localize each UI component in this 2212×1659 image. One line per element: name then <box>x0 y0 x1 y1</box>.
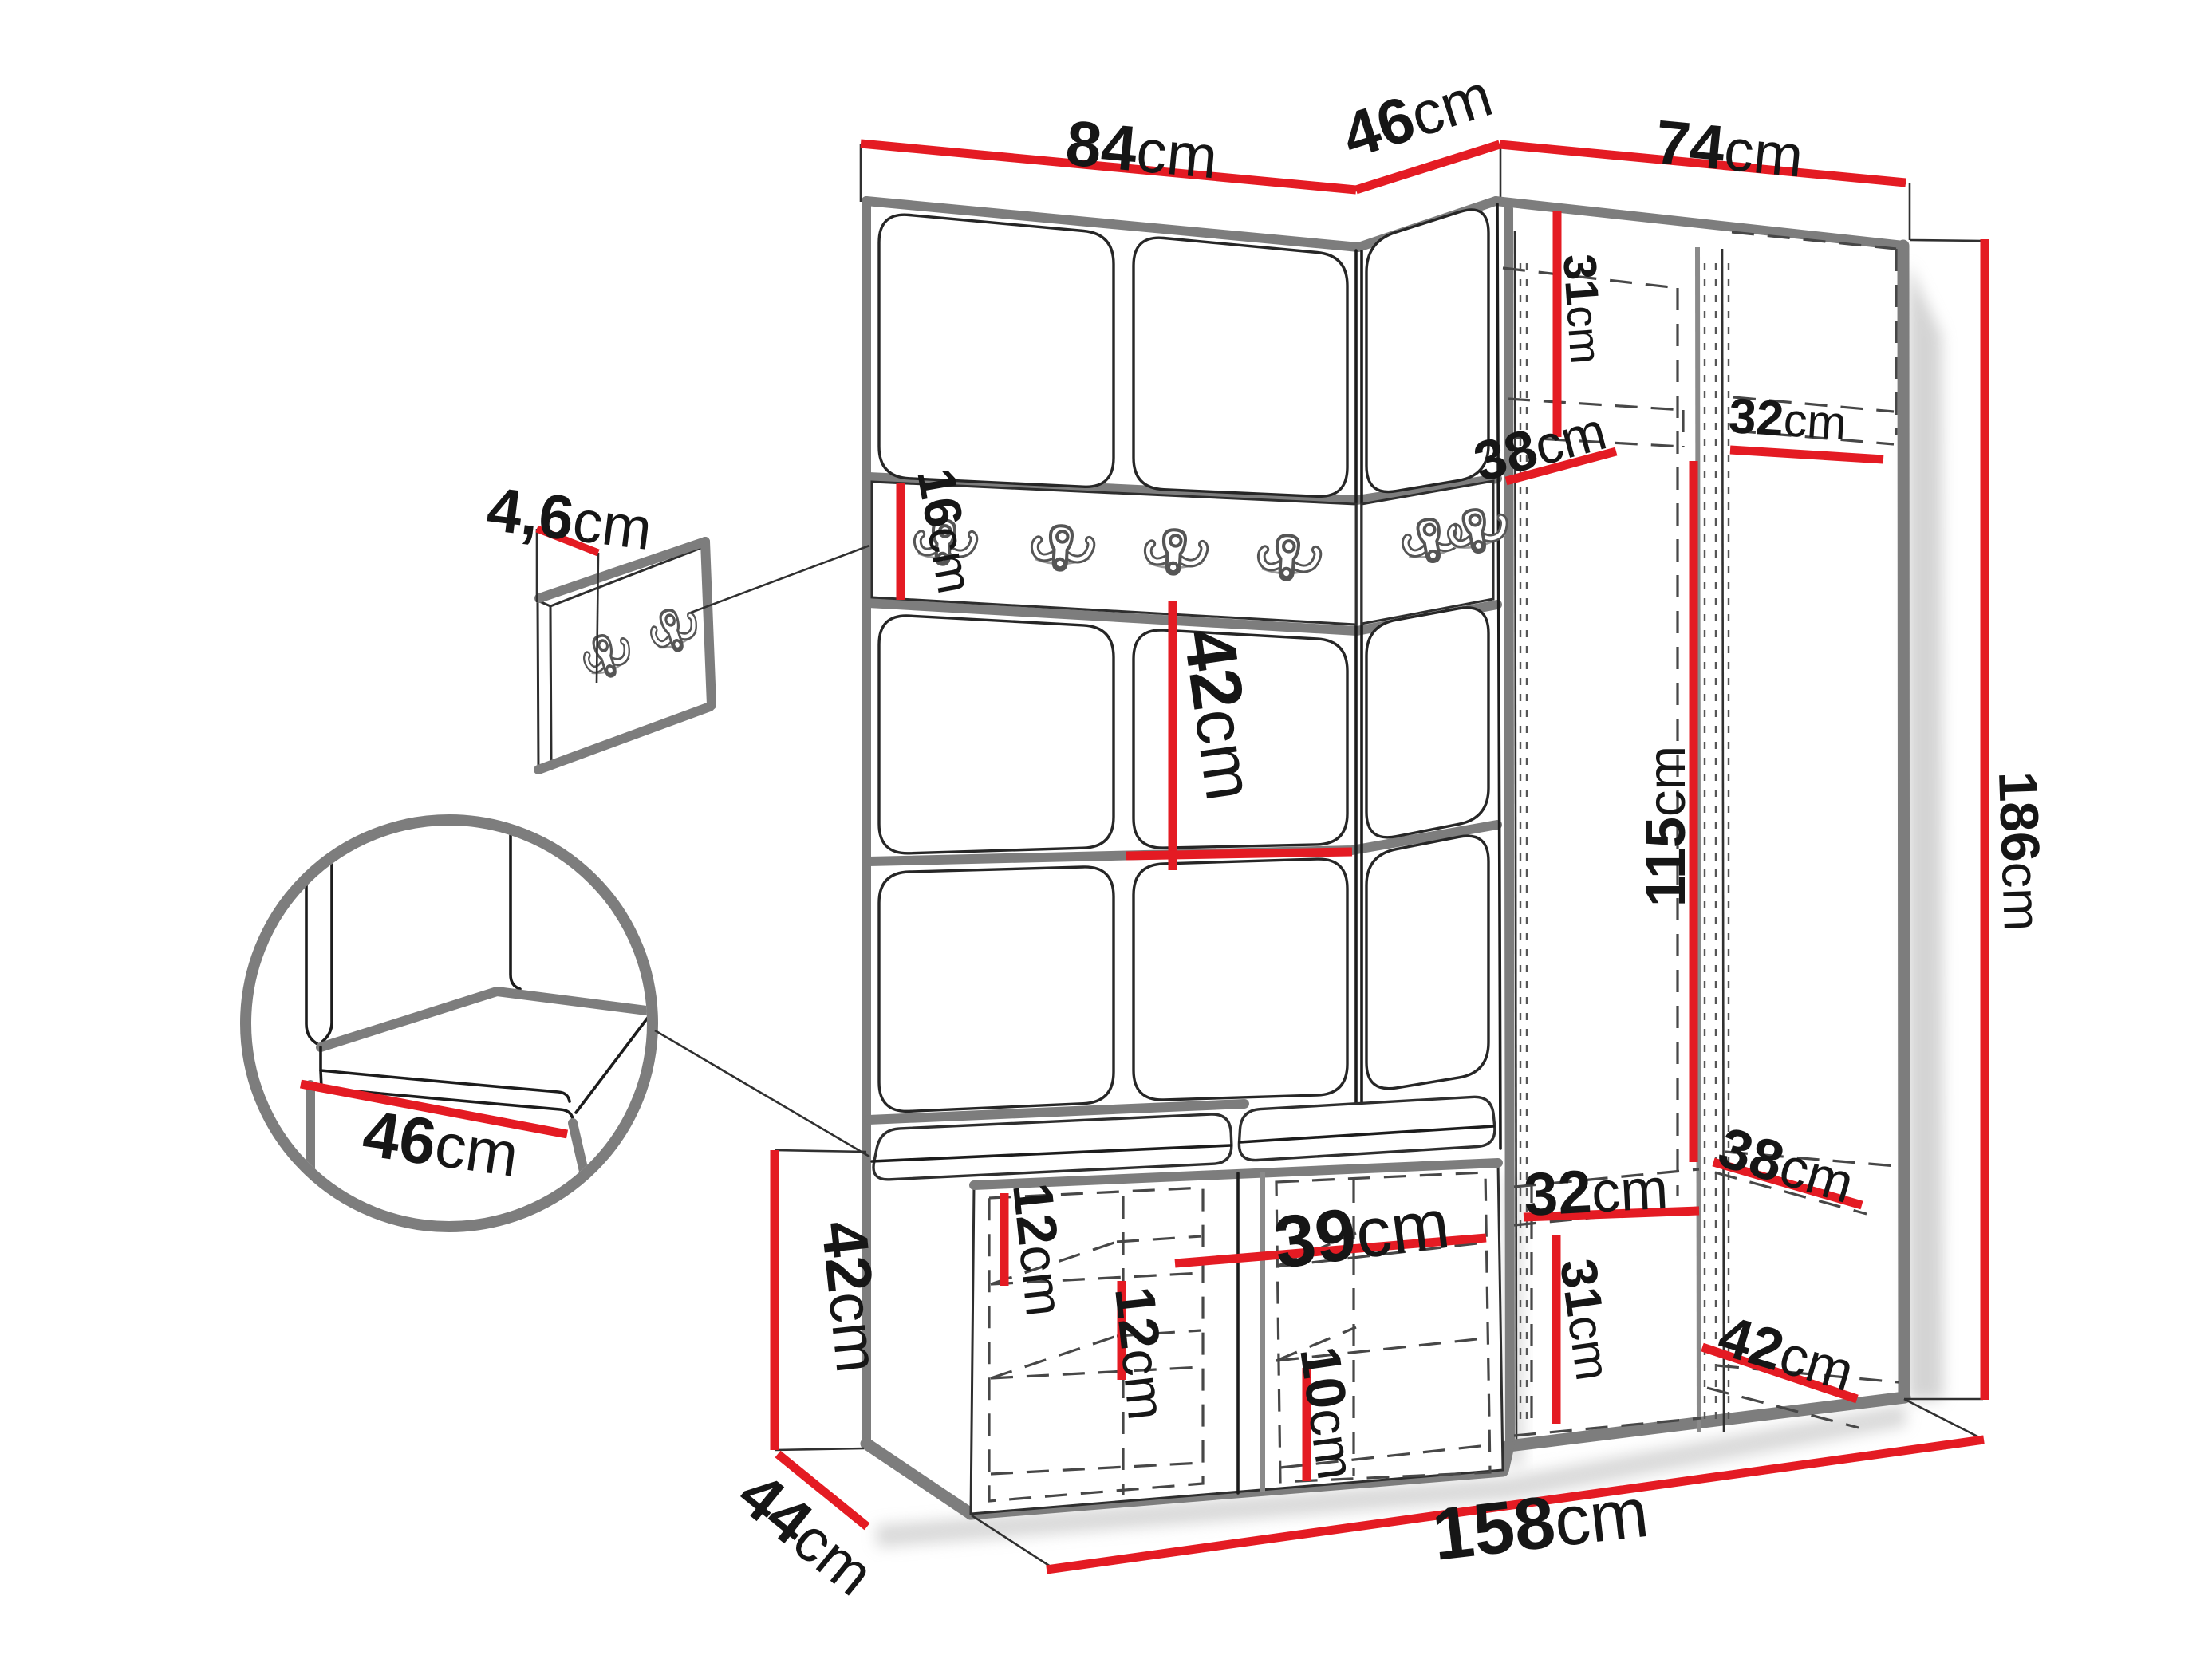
svg-text:115cm: 115cm <box>1634 746 1697 907</box>
svg-text:32cm: 32cm <box>1727 388 1848 451</box>
svg-text:186cm: 186cm <box>1987 770 2053 932</box>
svg-text:31cm: 31cm <box>1553 252 1612 365</box>
svg-text:32cm: 32cm <box>1522 1154 1670 1229</box>
